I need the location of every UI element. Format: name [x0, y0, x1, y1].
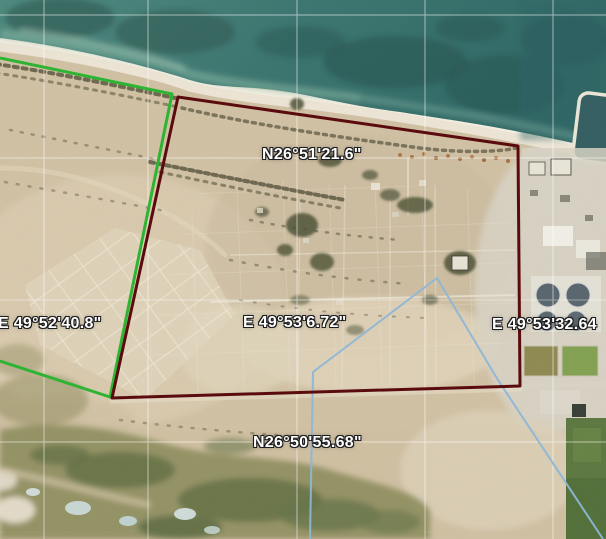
longitude-label-left: E 49°52'40.8" — [0, 315, 102, 333]
latitude-label-top: N26°51'21.6" — [262, 146, 362, 164]
longitude-label-middle: E 49°53'6.72" — [243, 314, 347, 332]
satellite-map-viewport[interactable]: N26°51'21.6" E 49°52'40.8" E 49°53'6.72"… — [0, 0, 606, 539]
map-canvas — [0, 0, 606, 539]
image-grain — [0, 0, 606, 539]
latitude-label-bottom: N26°50'55.68" — [253, 434, 362, 452]
longitude-label-right: E 49°53'32.64 — [492, 316, 597, 334]
